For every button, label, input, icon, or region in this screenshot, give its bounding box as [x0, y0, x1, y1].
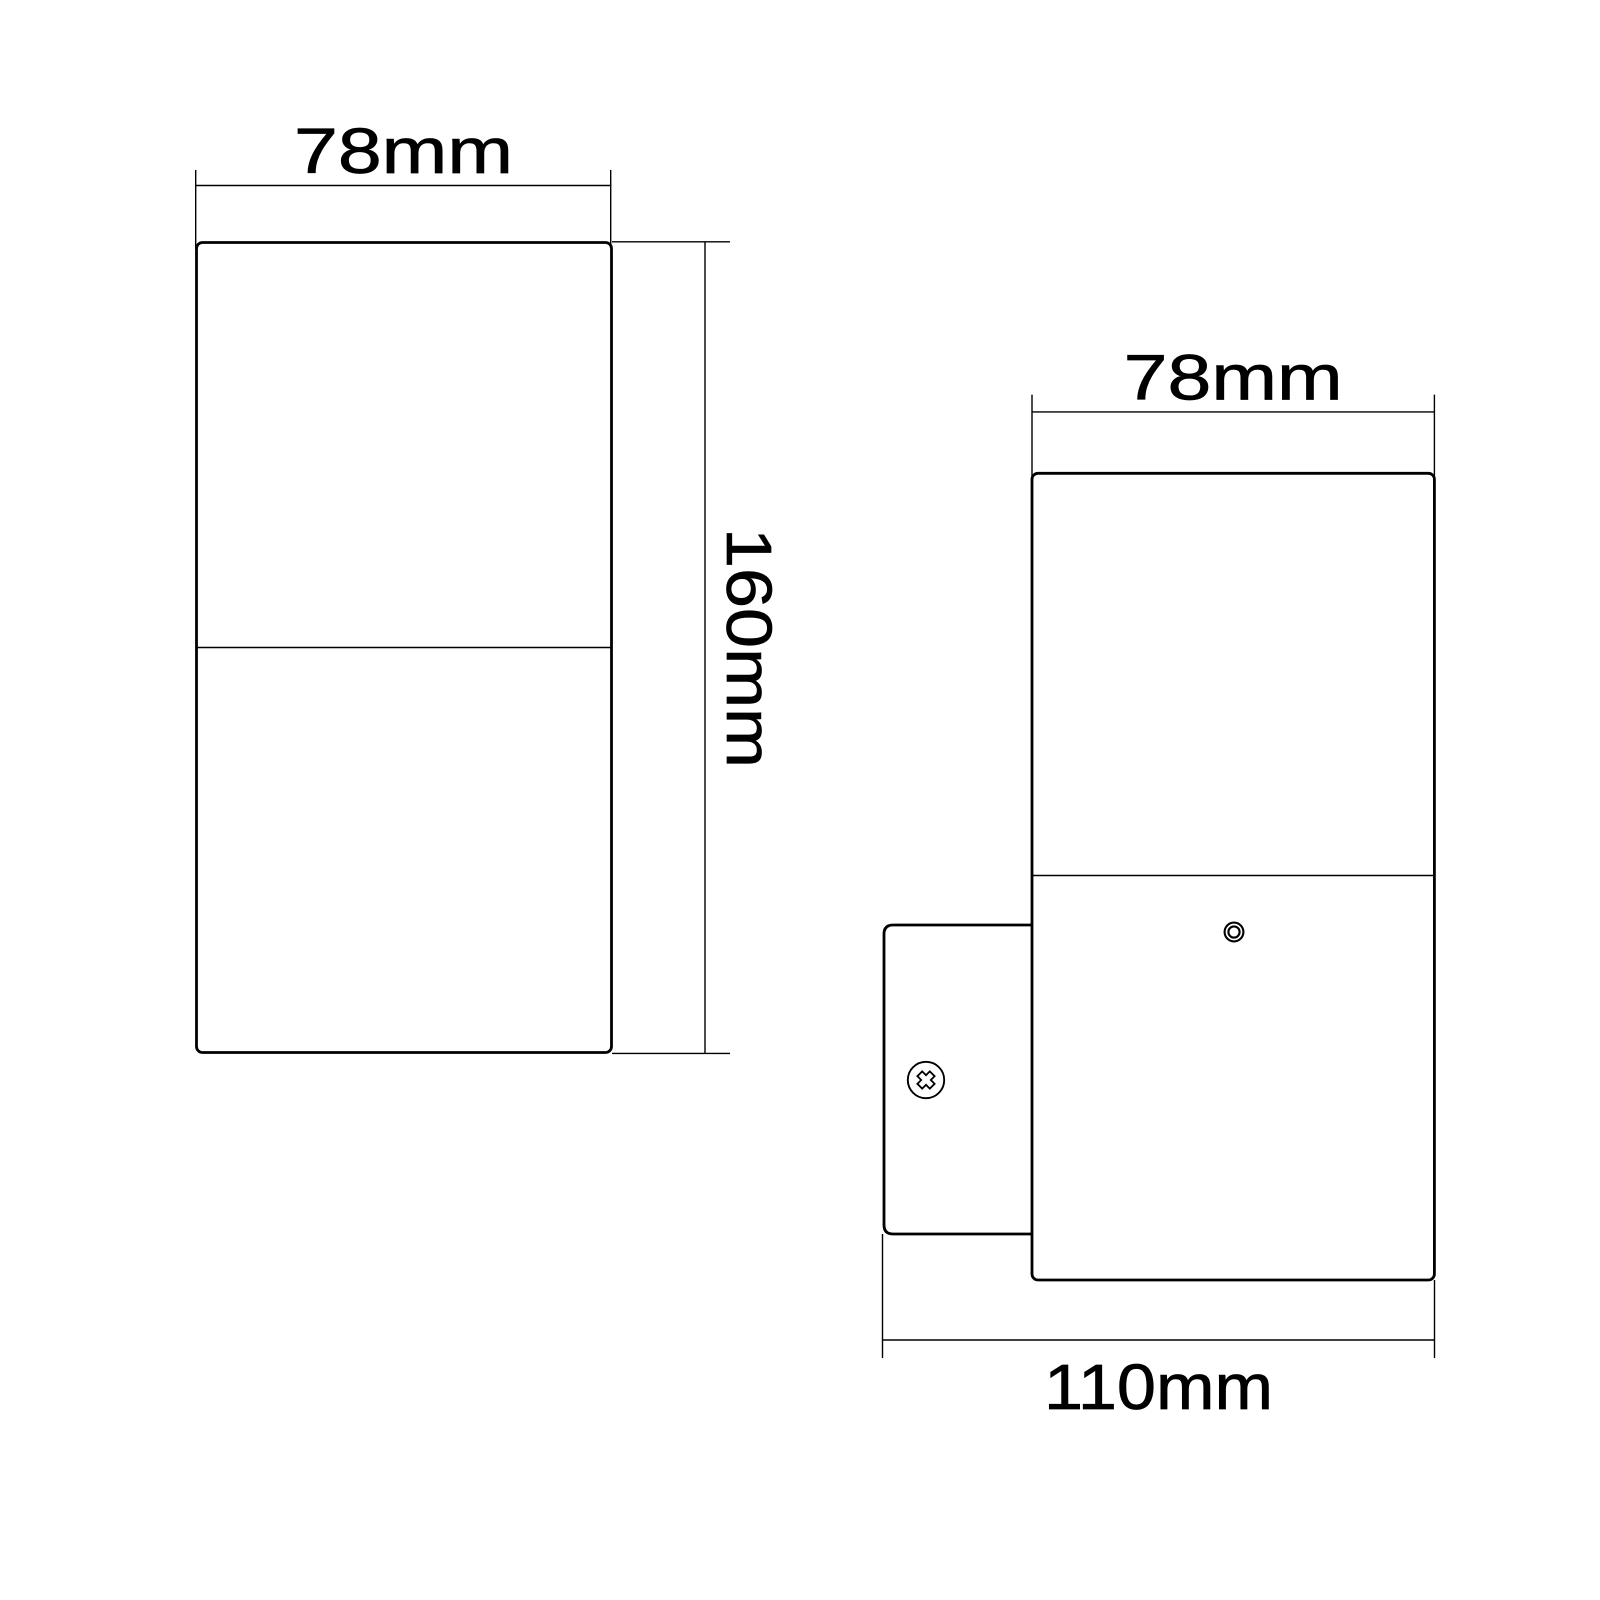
svg-text:110mm: 110mm [1044, 1351, 1273, 1423]
svg-text:160mm: 160mm [713, 528, 785, 768]
svg-text:78mm: 78mm [1124, 342, 1343, 414]
svg-text:78mm: 78mm [294, 115, 513, 187]
